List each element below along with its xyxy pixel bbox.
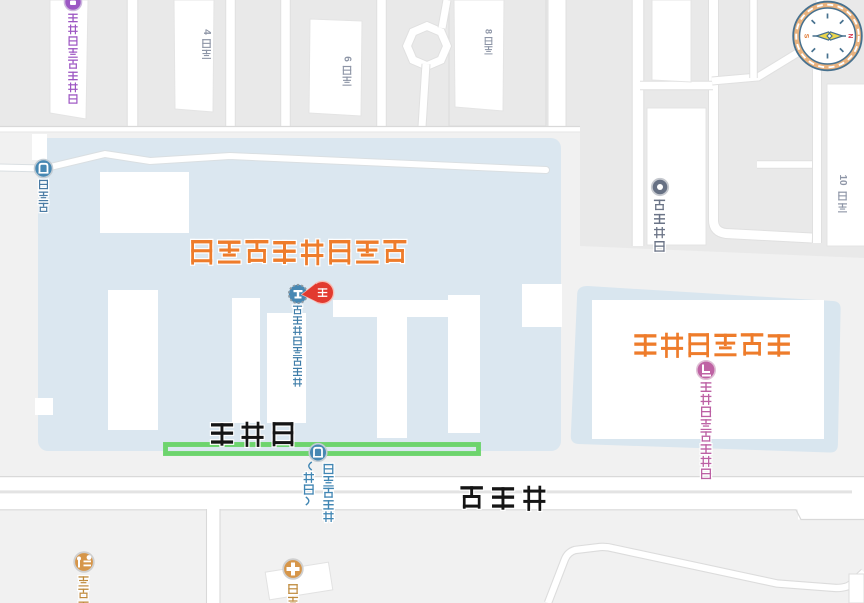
svg-text:S: S <box>803 34 810 39</box>
svg-text:8: 8 <box>484 29 494 34</box>
svg-text:10: 10 <box>837 174 848 186</box>
svg-text:N: N <box>847 34 854 39</box>
svg-text:6: 6 <box>342 56 353 62</box>
svg-text:4: 4 <box>201 29 212 35</box>
